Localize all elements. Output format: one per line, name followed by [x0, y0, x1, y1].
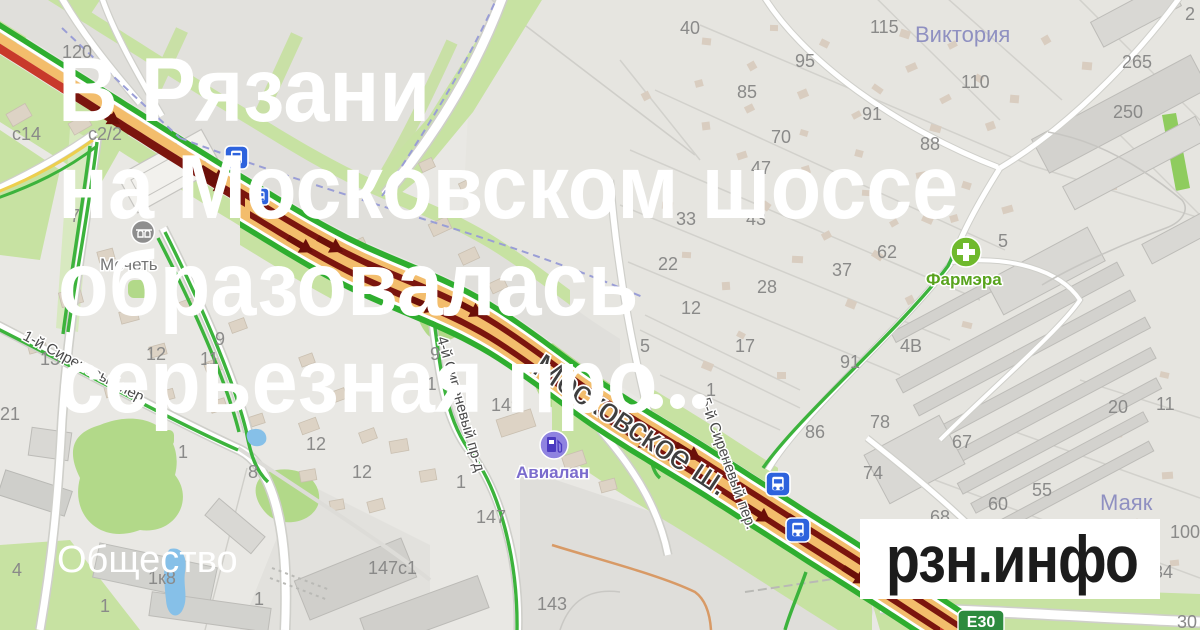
svg-text:67: 67 — [952, 432, 972, 452]
svg-text:55: 55 — [1032, 480, 1052, 500]
svg-text:2: 2 — [1185, 4, 1195, 24]
svg-text:30: 30 — [1177, 612, 1197, 630]
svg-text:4: 4 — [12, 560, 22, 580]
svg-text:Маяк: Маяк — [1100, 490, 1153, 515]
svg-text:1: 1 — [456, 472, 466, 492]
svg-text:1: 1 — [178, 442, 188, 462]
svg-text:250: 250 — [1113, 102, 1143, 122]
svg-text:115: 115 — [870, 17, 899, 37]
svg-text:12: 12 — [352, 462, 372, 482]
svg-text:74: 74 — [863, 463, 883, 483]
svg-text:60: 60 — [988, 494, 1008, 514]
svg-text:8: 8 — [248, 462, 258, 482]
svg-text:100: 100 — [1170, 522, 1200, 542]
svg-text:E30: E30 — [967, 614, 996, 630]
svg-text:Авиалан: Авиалан — [516, 463, 589, 482]
svg-text:с14: с14 — [12, 124, 41, 144]
svg-text:21: 21 — [0, 404, 20, 424]
svg-text:11: 11 — [1156, 394, 1175, 414]
svg-text:147: 147 — [476, 507, 506, 527]
svg-text:143: 143 — [537, 594, 567, 614]
svg-text:20: 20 — [1108, 397, 1128, 417]
svg-text:5: 5 — [998, 231, 1008, 251]
svg-text:265: 265 — [1122, 52, 1152, 72]
svg-text:1: 1 — [254, 589, 264, 609]
svg-text:110: 110 — [961, 72, 990, 92]
svg-text:12: 12 — [306, 434, 326, 454]
svg-text:1: 1 — [100, 596, 110, 616]
svg-text:147с1: 147с1 — [368, 558, 417, 578]
svg-text:40: 40 — [680, 18, 700, 38]
